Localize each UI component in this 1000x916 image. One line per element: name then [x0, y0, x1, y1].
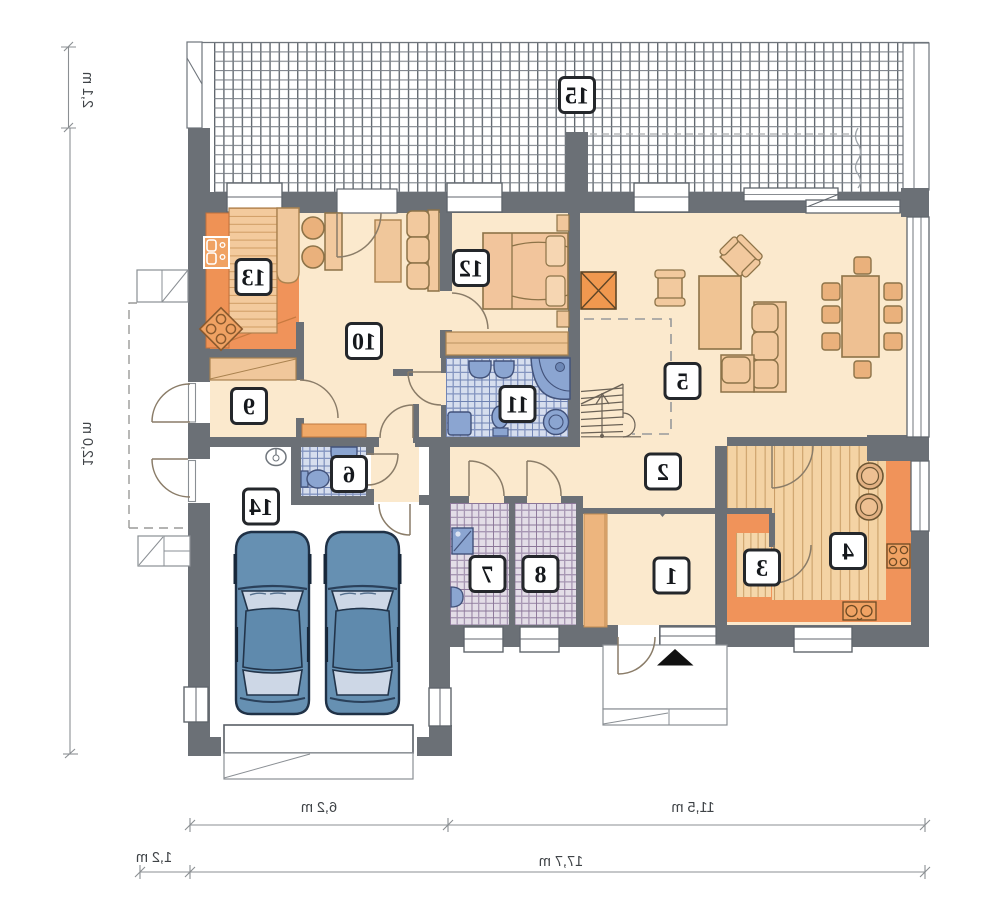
svg-text:11,5 m: 11,5 m	[671, 800, 714, 816]
svg-text:14: 14	[249, 495, 273, 521]
svg-text:7: 7	[482, 563, 494, 589]
svg-text:3: 3	[756, 556, 768, 582]
svg-text:17,7 m: 17,7 m	[539, 854, 583, 870]
svg-text:13: 13	[242, 266, 266, 292]
svg-text:8: 8	[535, 563, 547, 589]
svg-text:2,1 m: 2,1 m	[79, 72, 95, 108]
svg-text:15: 15	[565, 84, 589, 110]
svg-text:12: 12	[459, 257, 483, 283]
svg-text:1: 1	[666, 564, 678, 590]
svg-text:9: 9	[243, 395, 255, 421]
svg-text:4: 4	[842, 540, 854, 566]
svg-text:1,2 m: 1,2 m	[136, 850, 172, 866]
svg-text:6,2 m: 6,2 m	[301, 800, 337, 816]
svg-text:5: 5	[677, 370, 689, 396]
svg-text:10: 10	[352, 330, 376, 356]
svg-text:11: 11	[506, 393, 529, 419]
svg-text:6: 6	[343, 463, 355, 489]
svg-text:12,0 m: 12,0 m	[79, 422, 95, 466]
svg-text:2: 2	[657, 460, 669, 486]
